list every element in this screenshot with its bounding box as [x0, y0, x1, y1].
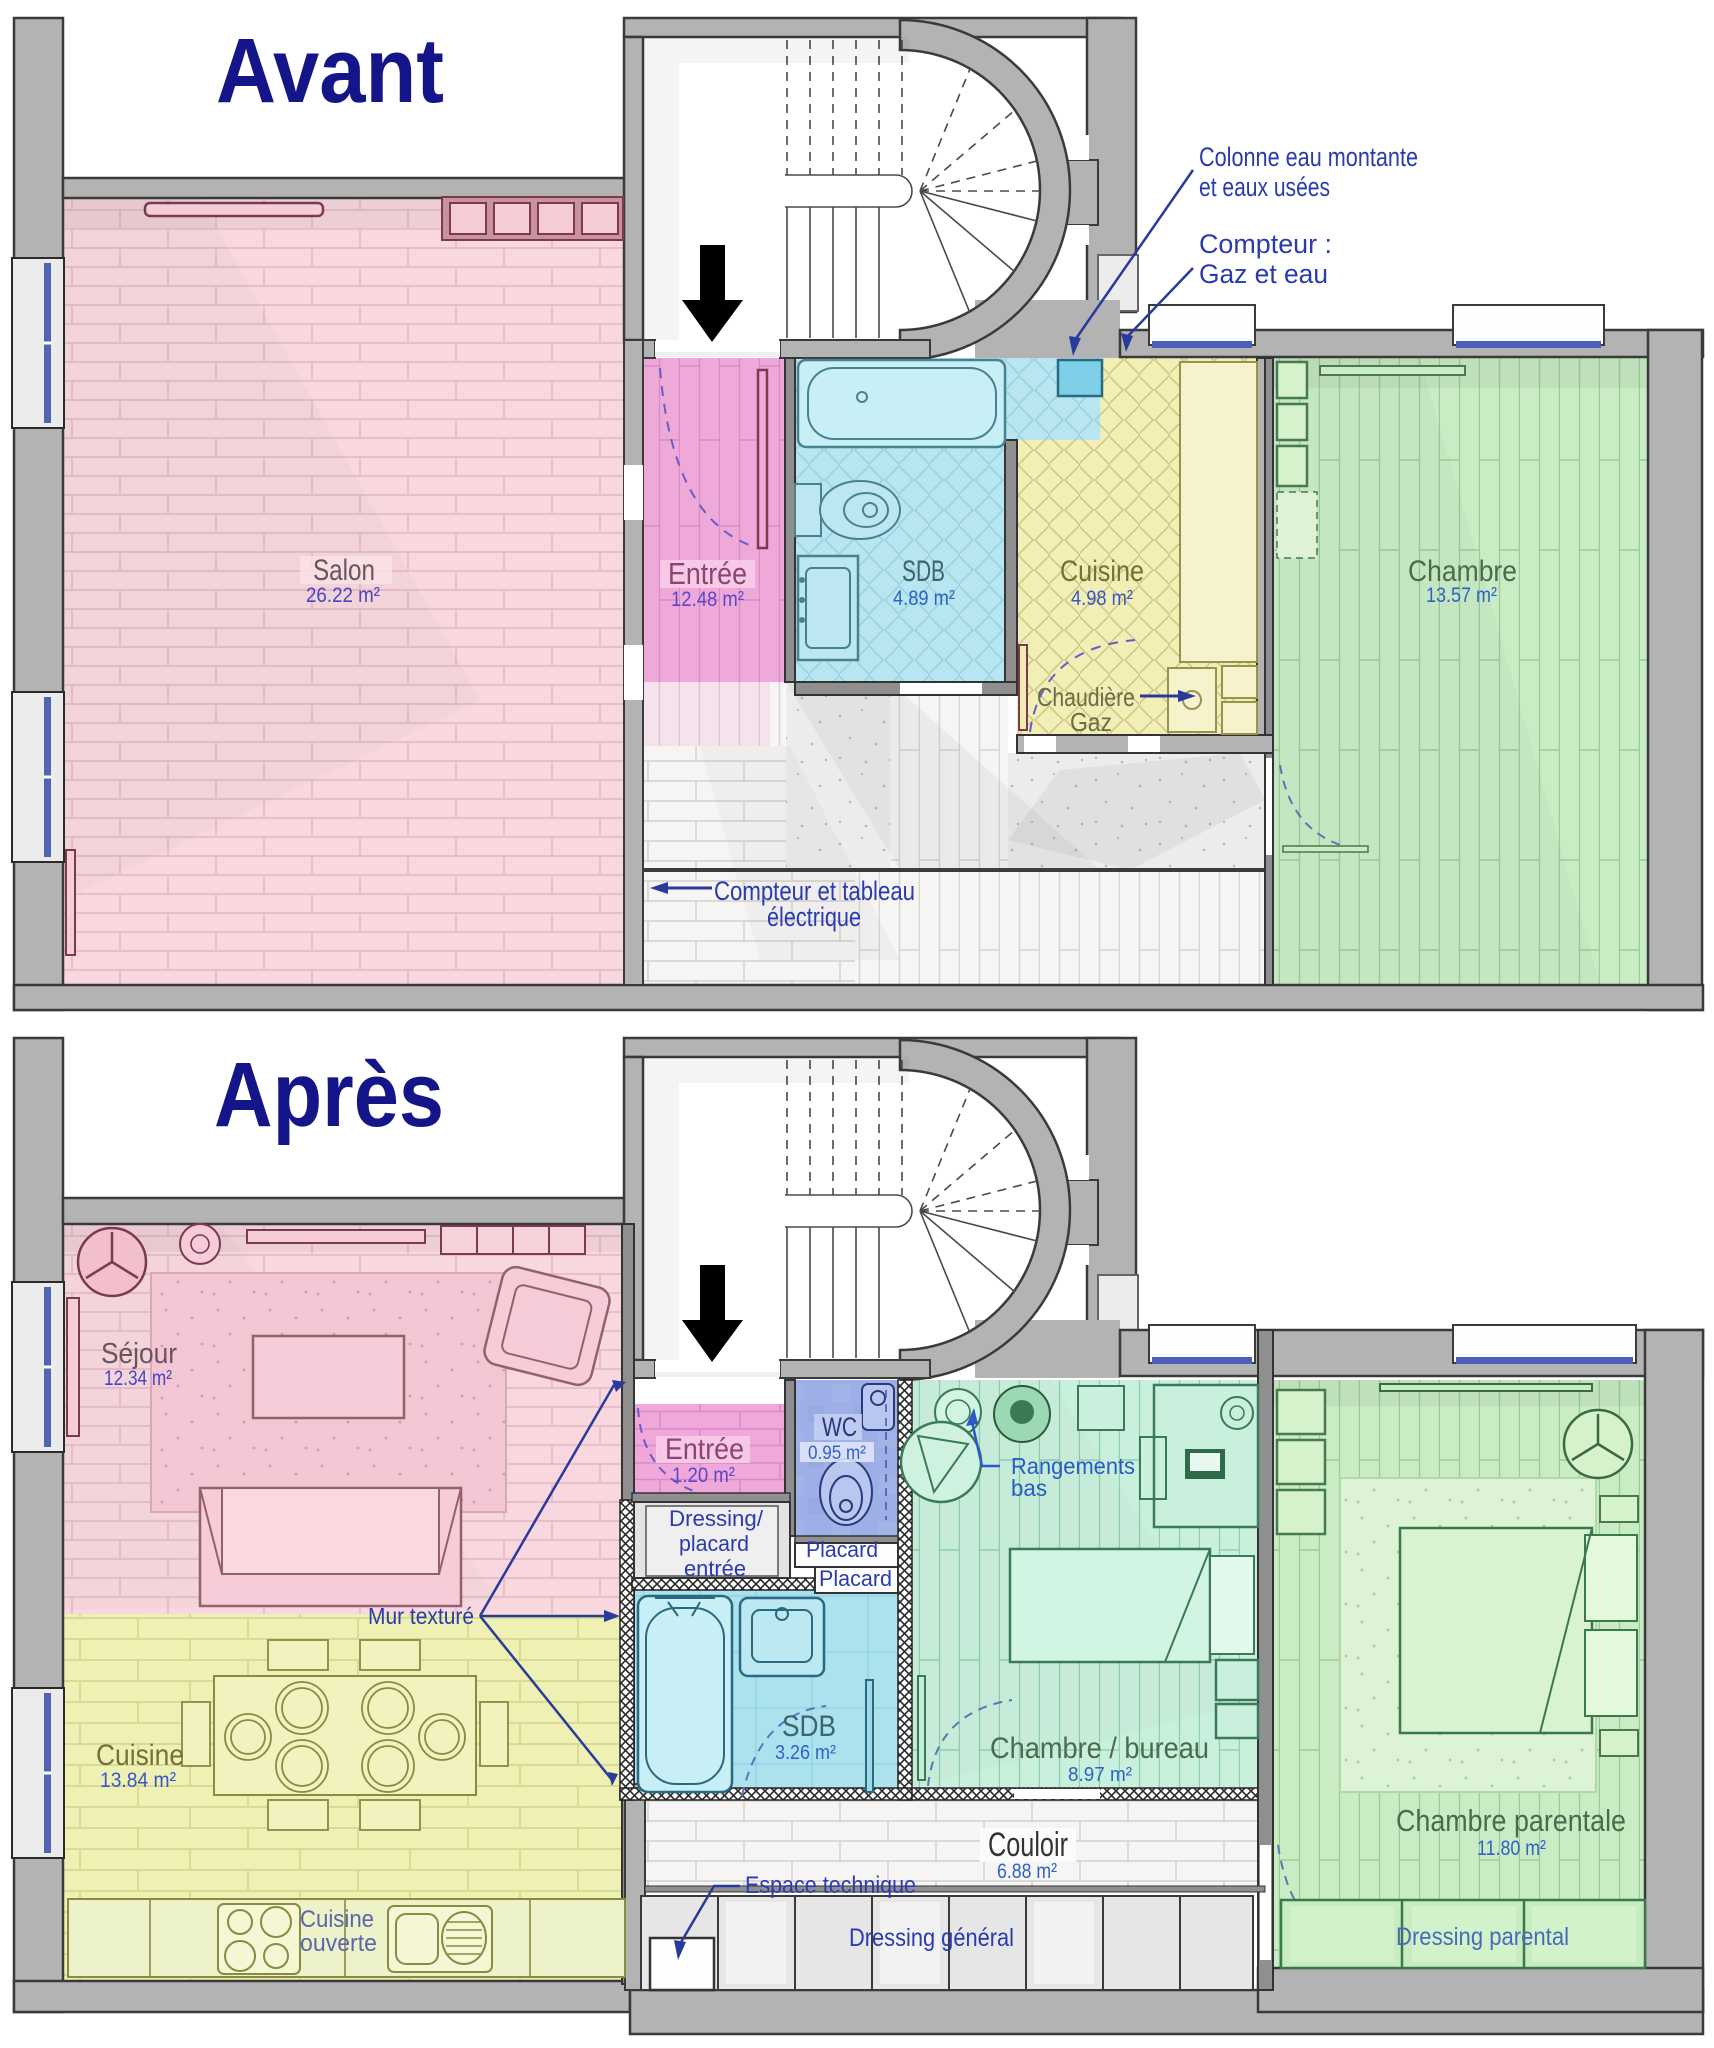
svg-text:Dressing parental: Dressing parental: [1396, 1923, 1569, 1951]
svg-text:Placard: Placard: [819, 1566, 892, 1591]
svg-text:0.95 m²: 0.95 m²: [808, 1443, 866, 1464]
svg-text:Colonne eau montante: Colonne eau montante: [1199, 142, 1418, 172]
svg-text:4.98 m²: 4.98 m²: [1071, 587, 1133, 610]
svg-text:13.57 m²: 13.57 m²: [1426, 584, 1497, 607]
svg-text:Avant: Avant: [216, 20, 444, 122]
svg-text:SDB: SDB: [782, 1710, 836, 1743]
svg-text:11.80 m²: 11.80 m²: [1477, 1837, 1546, 1860]
svg-text:Mur texturé: Mur texturé: [368, 1603, 474, 1629]
svg-text:Placard: Placard: [806, 1537, 878, 1562]
svg-text:6.88 m²: 6.88 m²: [997, 1860, 1057, 1883]
svg-text:Cuisine: Cuisine: [96, 1739, 184, 1772]
svg-text:12.48 m²: 12.48 m²: [671, 588, 744, 611]
svg-text:SDB: SDB: [902, 555, 945, 588]
svg-text:8.97 m²: 8.97 m²: [1068, 1764, 1132, 1786]
svg-text:Cuisine: Cuisine: [1060, 555, 1144, 588]
svg-text:Cuisine: Cuisine: [300, 1906, 374, 1933]
svg-text:Chambre / bureau: Chambre / bureau: [990, 1732, 1209, 1765]
svg-text:Chambre parentale: Chambre parentale: [1396, 1803, 1626, 1838]
svg-text:Gaz et eau: Gaz et eau: [1199, 259, 1328, 289]
svg-text:Entrée: Entrée: [665, 1433, 744, 1466]
svg-text:Dressing/: Dressing/: [669, 1506, 764, 1531]
svg-text:Couloir: Couloir: [988, 1826, 1068, 1864]
svg-text:Entrée: Entrée: [668, 556, 747, 591]
svg-text:Séjour: Séjour: [101, 1338, 177, 1370]
svg-text:3.26 m²: 3.26 m²: [775, 1742, 836, 1764]
svg-text:et eaux usées: et eaux usées: [1199, 172, 1330, 202]
svg-text:Salon: Salon: [313, 554, 375, 587]
svg-text:bas: bas: [1011, 1475, 1047, 1501]
svg-text:12.34 m²: 12.34 m²: [104, 1367, 172, 1390]
svg-text:électrique: électrique: [767, 902, 861, 932]
svg-text:Dressing général: Dressing général: [849, 1924, 1014, 1952]
svg-text:ouverte: ouverte: [300, 1930, 377, 1957]
svg-text:Compteur :: Compteur :: [1199, 229, 1332, 259]
svg-text:13.84 m²: 13.84 m²: [100, 1769, 176, 1792]
svg-text:entrée: entrée: [684, 1556, 746, 1581]
svg-text:4.89 m²: 4.89 m²: [893, 587, 955, 610]
svg-text:Espace technique: Espace technique: [745, 1872, 916, 1899]
svg-text:WC: WC: [822, 1412, 857, 1442]
svg-text:26.22 m²: 26.22 m²: [306, 584, 380, 607]
svg-text:Après: Après: [214, 1044, 444, 1146]
svg-text:placard: placard: [679, 1531, 749, 1556]
svg-text:Gaz: Gaz: [1070, 707, 1112, 737]
svg-text:1.20 m²: 1.20 m²: [672, 1464, 735, 1487]
